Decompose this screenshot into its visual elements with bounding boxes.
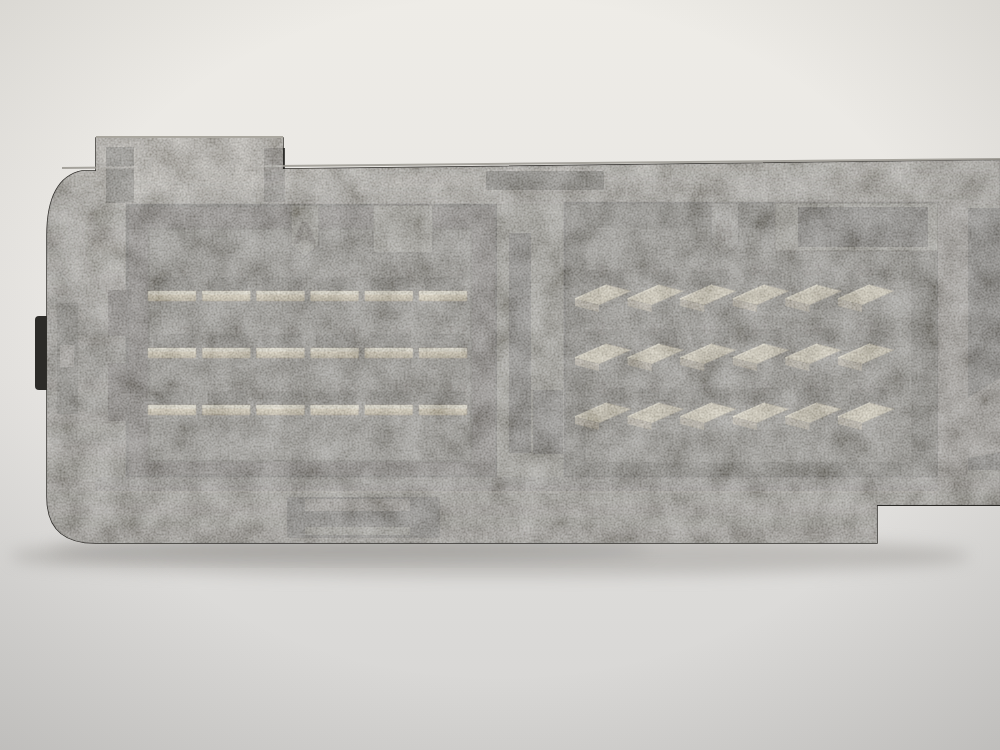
photo-frame: A 147101316258111417369121518 B 14710131… <box>0 0 1000 750</box>
ecu-connector-photo: A 147101316258111417369121518 B 14710131… <box>0 0 1000 750</box>
vignette-overlay <box>0 0 1000 750</box>
